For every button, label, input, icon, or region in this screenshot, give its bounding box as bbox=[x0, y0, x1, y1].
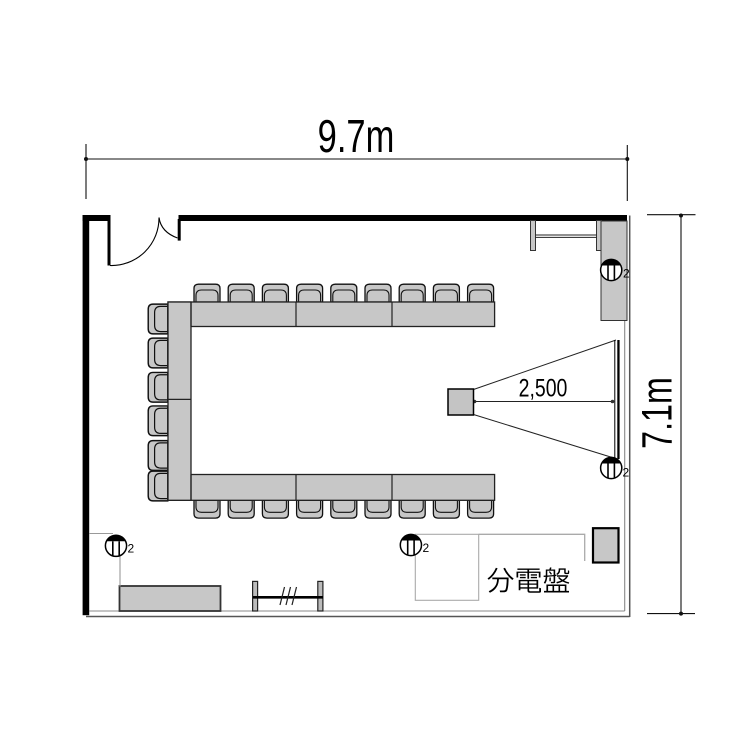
svg-text:7.1m: 7.1m bbox=[634, 377, 682, 449]
svg-text:9.7m: 9.7m bbox=[318, 110, 395, 162]
svg-text:2: 2 bbox=[623, 267, 630, 281]
svg-text:2: 2 bbox=[423, 541, 430, 555]
svg-text:2: 2 bbox=[623, 466, 630, 480]
svg-text:2,500: 2,500 bbox=[519, 374, 568, 402]
svg-text:2: 2 bbox=[128, 542, 135, 556]
